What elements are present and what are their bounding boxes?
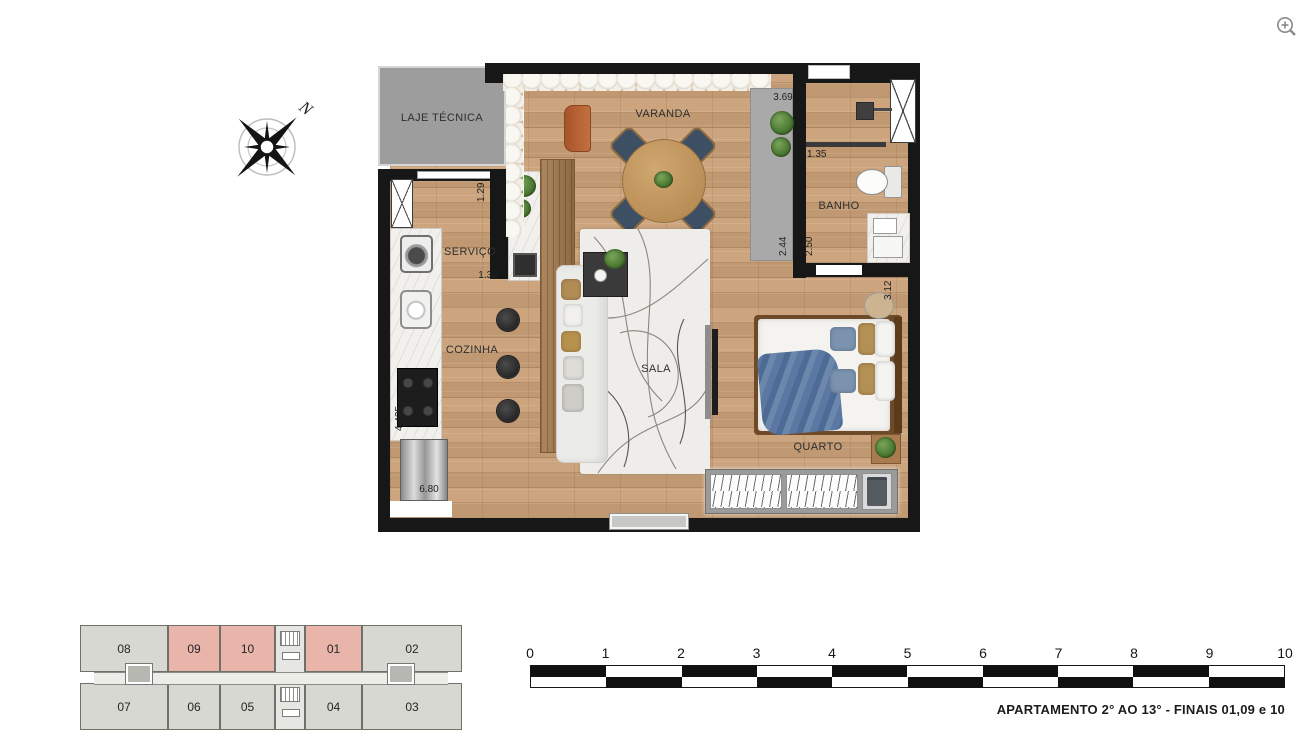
room-label-laje-tecnica: LAJE TÉCNICA — [380, 112, 504, 124]
key-plan: 08 09 10 01 02 07 06 05 04 03 — [80, 625, 462, 730]
stairs-icon — [280, 631, 300, 646]
bar-stool — [497, 309, 519, 331]
washing-machine — [400, 235, 433, 273]
room-label-servico: SERVIÇO — [444, 246, 494, 258]
banho-door-opening — [816, 265, 862, 275]
scale-tick: 3 — [747, 645, 767, 661]
toilet-bowl — [856, 169, 888, 195]
scale-segment — [983, 666, 1058, 677]
entry-door — [610, 514, 688, 529]
bed-blanket — [757, 348, 844, 437]
scale-tick: 2 — [671, 645, 691, 661]
room-label-sala: SALA — [634, 363, 678, 375]
scale-segment — [908, 677, 983, 688]
banho-window-icon — [890, 79, 916, 143]
wall-left — [378, 169, 390, 532]
keyplan-unit: 07 — [80, 683, 168, 730]
scale-tick: 4 — [822, 645, 842, 661]
bed-pillow — [858, 363, 876, 395]
scale-segment — [757, 677, 832, 688]
wall-top — [485, 63, 793, 74]
dim-quarto: 3.12 — [883, 271, 894, 309]
dim-shower: 1.35 — [807, 149, 837, 160]
dim-varanda: 3.69 — [766, 92, 800, 103]
keyplan-unit: 09 — [168, 625, 220, 672]
tv — [712, 329, 718, 415]
unit-number: 09 — [187, 642, 200, 656]
room-label-quarto: QUARTO — [790, 441, 846, 453]
scale-segment — [682, 666, 757, 677]
bar-stool — [497, 356, 519, 378]
banho-top-recess — [808, 65, 850, 79]
keyplan-elevator-left — [126, 664, 152, 684]
dim-banho: 2.50 — [804, 229, 815, 263]
elevator-slot — [282, 709, 300, 717]
plan-caption: APARTAMENTO 2° AO 13° - FINAIS 01,09 e 1… — [997, 702, 1285, 717]
curtain — [506, 87, 524, 237]
kitchen-sink — [400, 290, 432, 329]
sofa-pillow — [561, 331, 581, 352]
vanity-sink — [873, 218, 897, 234]
elevator-slot — [282, 652, 300, 660]
wardrobe-hangers — [710, 474, 782, 509]
sofa-pillow — [563, 356, 584, 380]
stairs-icon — [280, 687, 300, 702]
keyplan-unit: 08 — [80, 625, 168, 672]
keyplan-unit: 01 — [305, 625, 362, 672]
keyplan-unit: 03 — [362, 683, 462, 730]
scale-tick: 1 — [596, 645, 616, 661]
bed-pillow — [830, 327, 856, 351]
plant-icon — [654, 171, 673, 188]
sofa-pillow — [562, 384, 584, 412]
keyplan-unit: 06 — [168, 683, 220, 730]
scale-segment — [1209, 677, 1284, 688]
keyplan-unit: 10 — [220, 625, 275, 672]
unit-number: 06 — [187, 700, 200, 714]
unit-number: 03 — [405, 700, 418, 714]
folded-shirt — [867, 477, 887, 506]
floor-plan: LAJE TÉCNICA — [378, 63, 920, 532]
compass-rose-icon: N — [222, 85, 322, 190]
scale-segment — [1058, 677, 1133, 688]
scale-tick: 6 — [973, 645, 993, 661]
bed-pillow — [875, 361, 895, 401]
scale-segment — [531, 666, 606, 677]
bed-pillow — [875, 321, 895, 357]
plant-icon — [770, 111, 794, 135]
tv-panel — [705, 325, 711, 419]
wall-corner-laje — [485, 63, 503, 83]
plant-icon — [771, 137, 791, 157]
bottom-left-niche — [390, 501, 452, 517]
curtain — [503, 74, 771, 91]
scale-segment — [1133, 666, 1208, 677]
bed-pillow — [830, 369, 856, 393]
scale-tick: 0 — [520, 645, 540, 661]
plant-icon — [604, 249, 626, 269]
unit-number: 10 — [241, 642, 254, 656]
scale-tick: 10 — [1275, 645, 1295, 661]
keyplan-unit: 04 — [305, 683, 362, 730]
unit-number: 07 — [117, 700, 130, 714]
unit-number: 01 — [327, 642, 340, 656]
dim-planter: 2.44 — [778, 229, 789, 263]
room-label-varanda: VARANDA — [633, 108, 693, 120]
sofa-pillow — [563, 304, 583, 327]
unit-number: 08 — [117, 642, 130, 656]
built-in-oven — [513, 253, 537, 277]
armchair — [564, 105, 591, 152]
scale-segment — [832, 666, 907, 677]
dim-apto: 6.80 — [414, 484, 444, 495]
shower-divider — [806, 142, 886, 147]
scale-tick: 7 — [1049, 645, 1069, 661]
wardrobe-hangers — [786, 474, 858, 509]
keyplan-elevator-right — [388, 664, 414, 684]
scale-tick: 5 — [898, 645, 918, 661]
scale-bar-body — [530, 665, 1285, 688]
scale-tick: 8 — [1124, 645, 1144, 661]
bed-pillow — [858, 323, 876, 355]
bed-headboard — [894, 317, 902, 433]
sofa-pillow — [561, 279, 581, 300]
keyplan-unit: 05 — [220, 683, 275, 730]
scale-segment — [606, 677, 681, 688]
unit-number: 02 — [405, 642, 418, 656]
shower-head — [856, 102, 874, 120]
dim-cozinha: 4.405 — [394, 395, 405, 441]
floorplan-page: N LAJE TÉCNICA — [0, 0, 1316, 753]
servico-shaft-window-icon — [391, 179, 413, 228]
plant-icon — [875, 437, 896, 458]
room-label-cozinha: COZINHA — [444, 344, 500, 356]
compass-north-label: N — [295, 97, 318, 121]
dim-servico-w: 1.38 — [473, 270, 503, 281]
zoom-in-icon[interactable] — [1274, 14, 1300, 40]
scale-tick: 9 — [1200, 645, 1220, 661]
dim-servico-d: 1.29 — [476, 177, 487, 207]
scale-bar: 0 1 2 3 4 5 6 7 8 9 10 — [530, 645, 1285, 689]
bar-stool — [497, 400, 519, 422]
unit-number: 04 — [327, 700, 340, 714]
unit-number: 05 — [241, 700, 254, 714]
vanity-basin — [873, 236, 903, 258]
mug — [594, 269, 607, 282]
room-label-banho: BANHO — [814, 200, 864, 212]
shower-arm — [872, 108, 892, 111]
